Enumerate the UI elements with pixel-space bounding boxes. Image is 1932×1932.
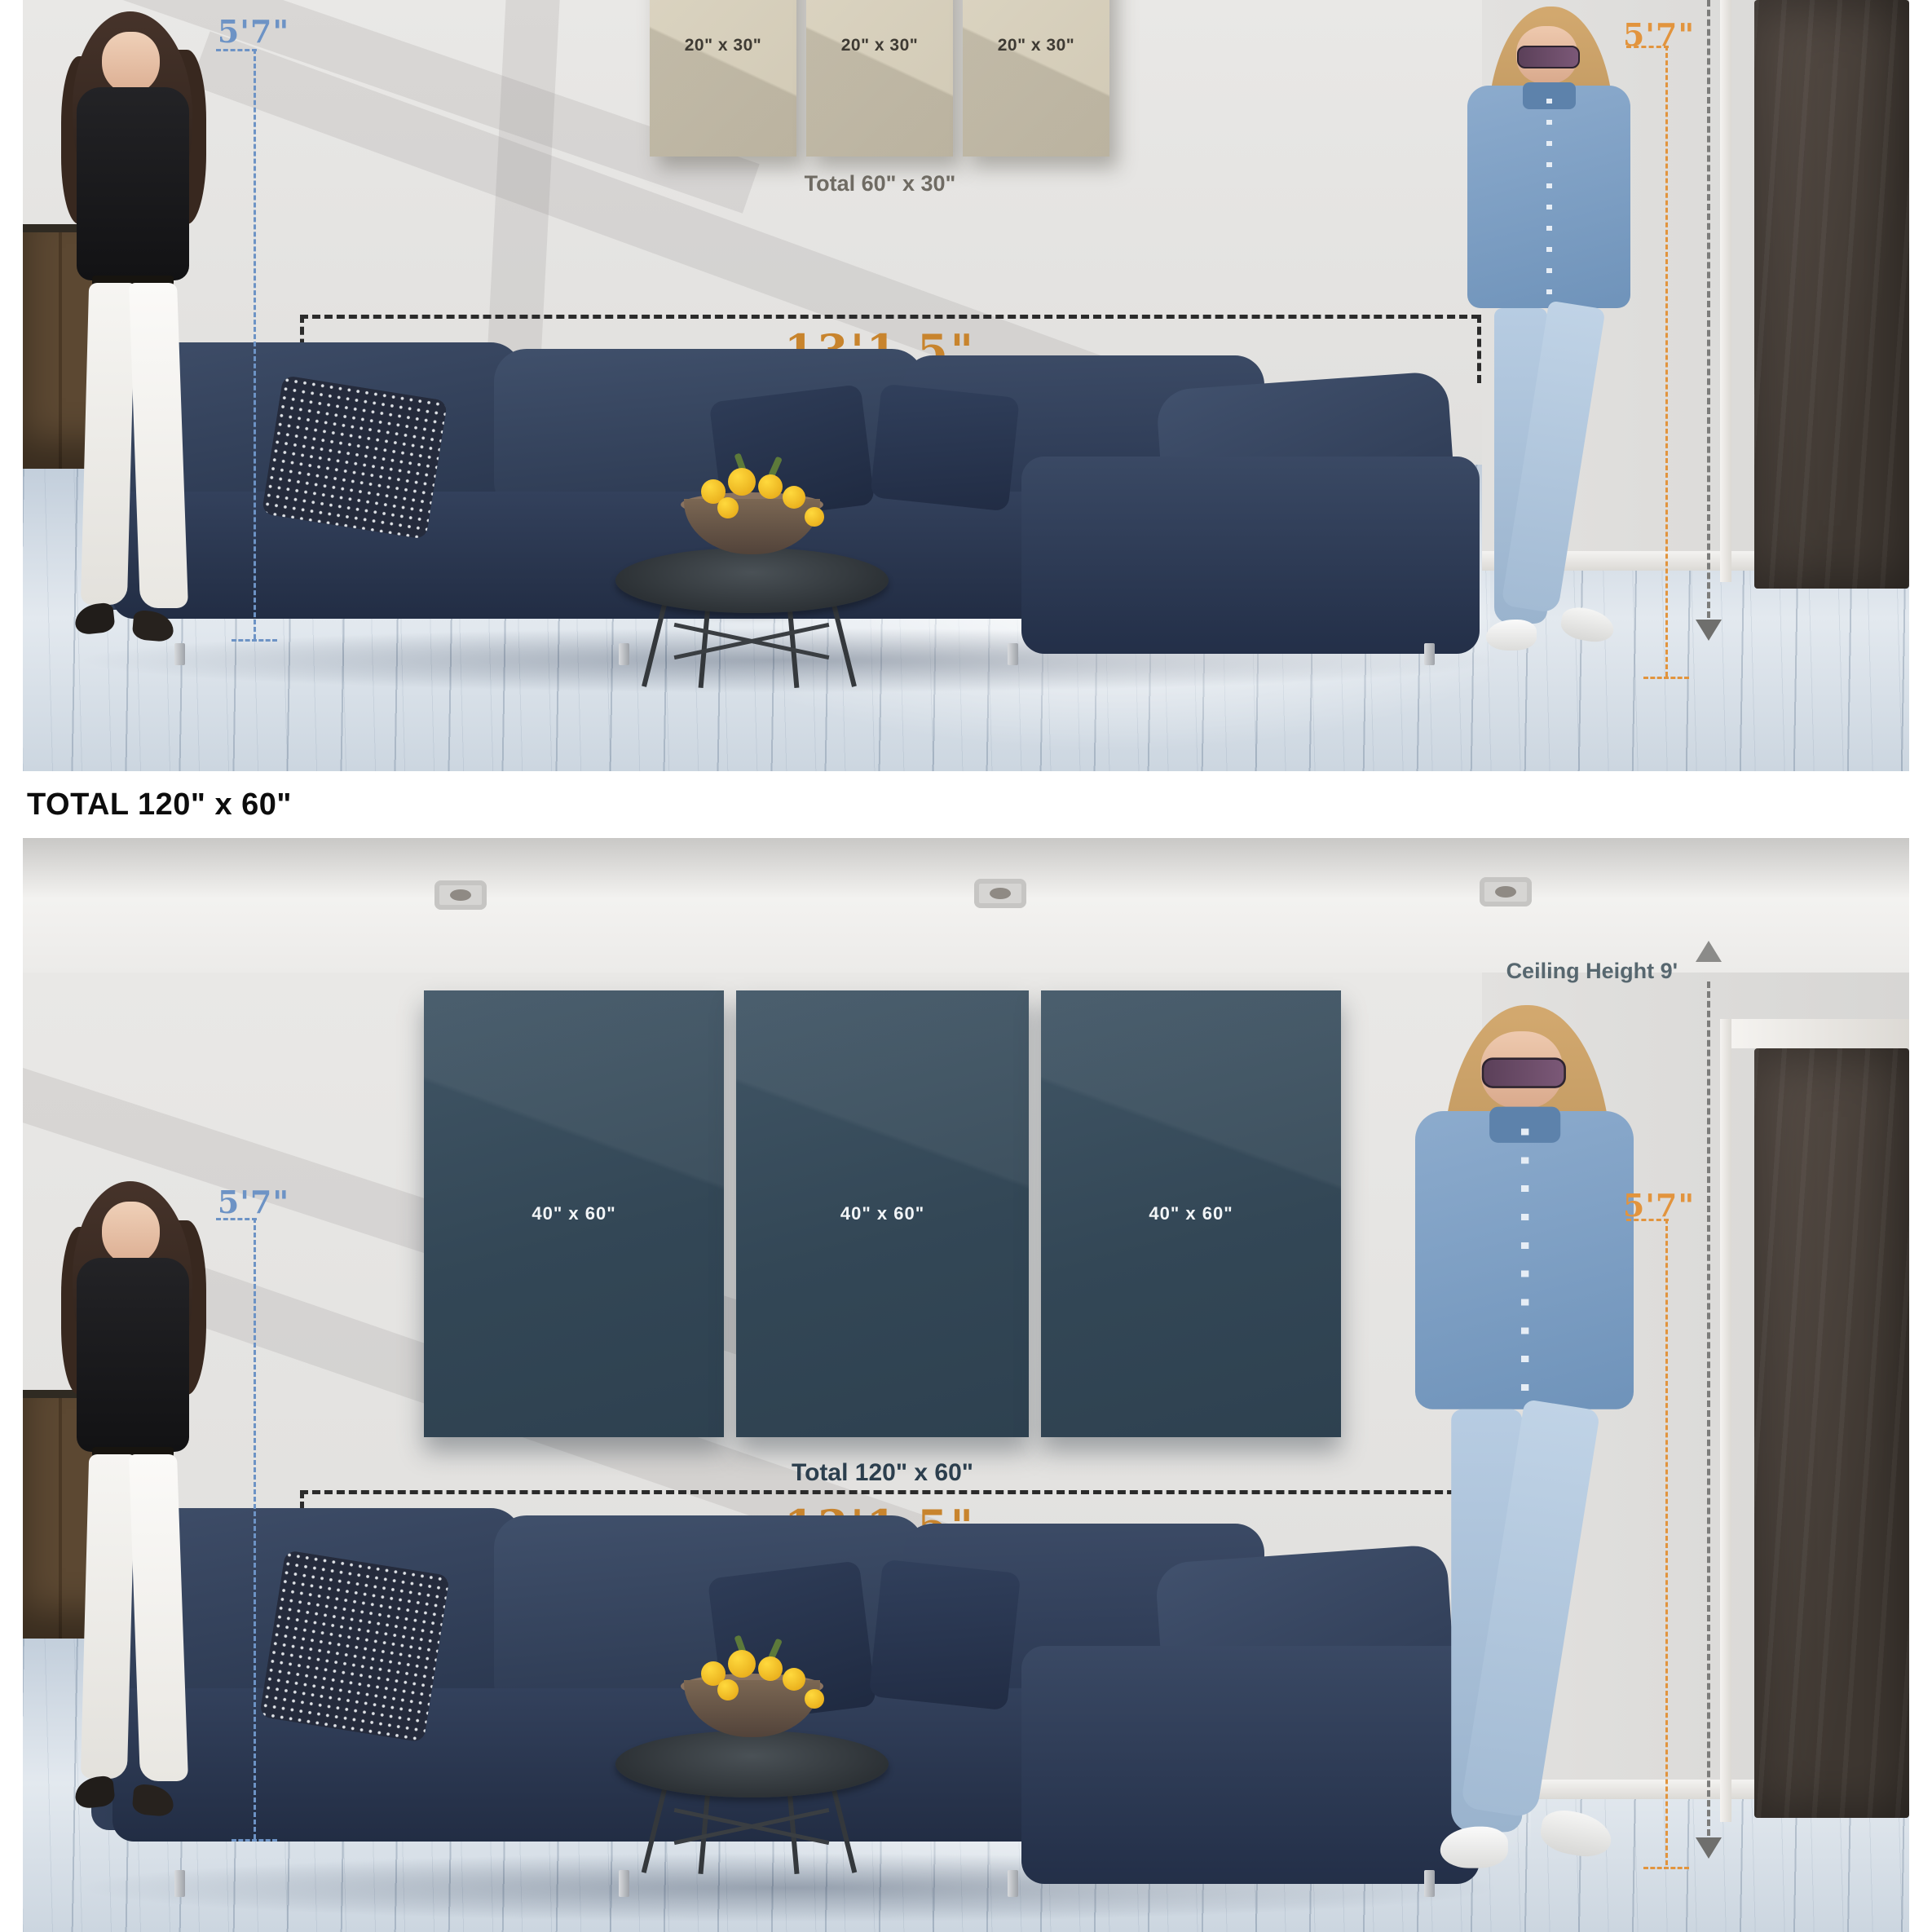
sofa-width-measure-line <box>300 1490 1480 1494</box>
scene-small-canvases: 20" x 30" 20" x 30" 20" x 30" Total 60" … <box>23 0 1909 771</box>
sofa-leg <box>619 1870 629 1897</box>
fruit <box>783 1668 805 1691</box>
sunglasses <box>1482 1058 1566 1089</box>
size-guide-page: 20" x 30" 20" x 30" 20" x 30" Total 60" … <box>0 0 1932 1932</box>
sofa-leg <box>174 1870 185 1897</box>
total-size-label: Total 120" x 60" <box>424 1459 1341 1487</box>
coffee-table <box>615 1704 889 1871</box>
person-height-label-left: 5'7" <box>201 13 307 50</box>
height-measure-line <box>1665 1219 1668 1865</box>
fruit <box>783 486 805 509</box>
canvas-size-label: 40" x 60" <box>840 1203 924 1224</box>
canvas-panel: 40" x 60" <box>736 990 1029 1437</box>
white-trouser-leg <box>129 283 188 608</box>
ceiling-spotlight <box>434 880 487 910</box>
white-trouser-leg <box>81 283 135 605</box>
sneaker <box>1440 1826 1508 1868</box>
height-measure-tick <box>1643 677 1689 679</box>
face <box>102 32 160 94</box>
woman-right <box>1447 7 1651 663</box>
jacket-buttons <box>1546 99 1552 296</box>
sunglasses <box>1517 46 1580 68</box>
sofa-chaise <box>1021 457 1480 654</box>
sofa-seat <box>112 492 1112 619</box>
fruit-bowl <box>684 499 821 554</box>
canvas-panel: 20" x 30" <box>650 0 796 157</box>
down-arrow-icon <box>1696 1837 1722 1859</box>
ceiling-spotlight <box>1480 877 1532 906</box>
white-trouser-leg <box>129 1454 188 1781</box>
sofa-leg <box>1008 1870 1018 1897</box>
throw-pillow <box>259 1550 450 1742</box>
height-measure-tick <box>232 639 277 642</box>
canvas-size-label: 20" x 30" <box>685 36 761 55</box>
shoe <box>73 602 116 635</box>
fruit <box>728 468 756 496</box>
shoe <box>131 1784 174 1817</box>
throw-pillow <box>870 383 1020 511</box>
canvas-size-label: 20" x 30" <box>841 36 918 55</box>
ceiling-height-line <box>1707 981 1710 1836</box>
fruit <box>728 1650 756 1678</box>
sneaker <box>1559 605 1617 645</box>
fruit <box>758 1656 783 1681</box>
sofa-leg <box>1424 643 1435 665</box>
fruit <box>758 474 783 499</box>
coffee-table <box>615 522 889 685</box>
door <box>1754 0 1909 589</box>
height-measure-line <box>216 1218 257 1220</box>
door-frame-header <box>1731 1019 1909 1048</box>
down-arrow-icon <box>1696 620 1722 641</box>
door-frame <box>1720 1019 1731 1822</box>
fruit <box>717 1679 739 1700</box>
sneaker <box>1486 620 1537 651</box>
divider-heading: TOTAL 120" x 60" <box>0 787 292 823</box>
canvas-panel: 20" x 30" <box>963 0 1109 157</box>
sofa-leg <box>1008 643 1018 665</box>
sneaker <box>1537 1806 1615 1860</box>
door <box>1754 1048 1909 1818</box>
shoe <box>73 1775 116 1809</box>
canvas-panel: 20" x 30" <box>806 0 953 157</box>
fruit <box>717 497 739 518</box>
woman-right <box>1388 1005 1661 1885</box>
jacket-buttons <box>1520 1128 1528 1392</box>
table-tray <box>615 548 889 613</box>
throw-pillow <box>262 375 448 539</box>
ceiling-height-line <box>1707 0 1710 618</box>
white-trouser-leg <box>81 1454 135 1779</box>
height-measure-line <box>1626 46 1669 48</box>
canvas-size-label: 40" x 60" <box>1149 1203 1233 1224</box>
height-measure-line <box>1665 46 1668 677</box>
ceiling-height-label: Ceiling Height 9' <box>1425 959 1678 984</box>
ceiling-spotlight <box>974 879 1026 908</box>
canvas-panel: 40" x 60" <box>424 990 724 1437</box>
up-arrow-icon <box>1696 941 1722 962</box>
door-frame <box>1720 0 1731 582</box>
height-measure-line <box>254 1218 256 1839</box>
black-top <box>77 87 190 280</box>
woman-left <box>49 11 220 655</box>
section-divider: TOTAL 120" x 60" <box>0 771 1932 838</box>
height-measure-tick <box>1643 1867 1689 1869</box>
black-top <box>77 1258 190 1453</box>
canvas-size-label: 40" x 60" <box>532 1203 615 1224</box>
shoe <box>131 610 174 643</box>
height-measure-line <box>1626 1219 1669 1221</box>
woman-left <box>49 1181 220 1829</box>
fruit <box>805 507 824 527</box>
sofa-width-measure-line <box>300 315 1480 319</box>
height-measure-tick <box>232 1839 277 1842</box>
table-tray <box>615 1731 889 1797</box>
ceiling <box>23 838 1909 973</box>
fruit <box>805 1689 824 1709</box>
person-height-label-left: 5'7" <box>201 1184 307 1220</box>
height-measure-line <box>216 49 257 51</box>
height-measure-line <box>254 49 256 639</box>
canvas-panel: 40" x 60" <box>1041 990 1341 1437</box>
total-size-label: Total 60" x 30" <box>650 171 1110 196</box>
face <box>102 1202 160 1264</box>
scene-large-canvases: 40" x 60" 40" x 60" 40" x 60" Total 120"… <box>23 838 1909 1932</box>
canvas-size-label: 20" x 30" <box>998 36 1074 55</box>
throw-pillow <box>869 1559 1021 1710</box>
